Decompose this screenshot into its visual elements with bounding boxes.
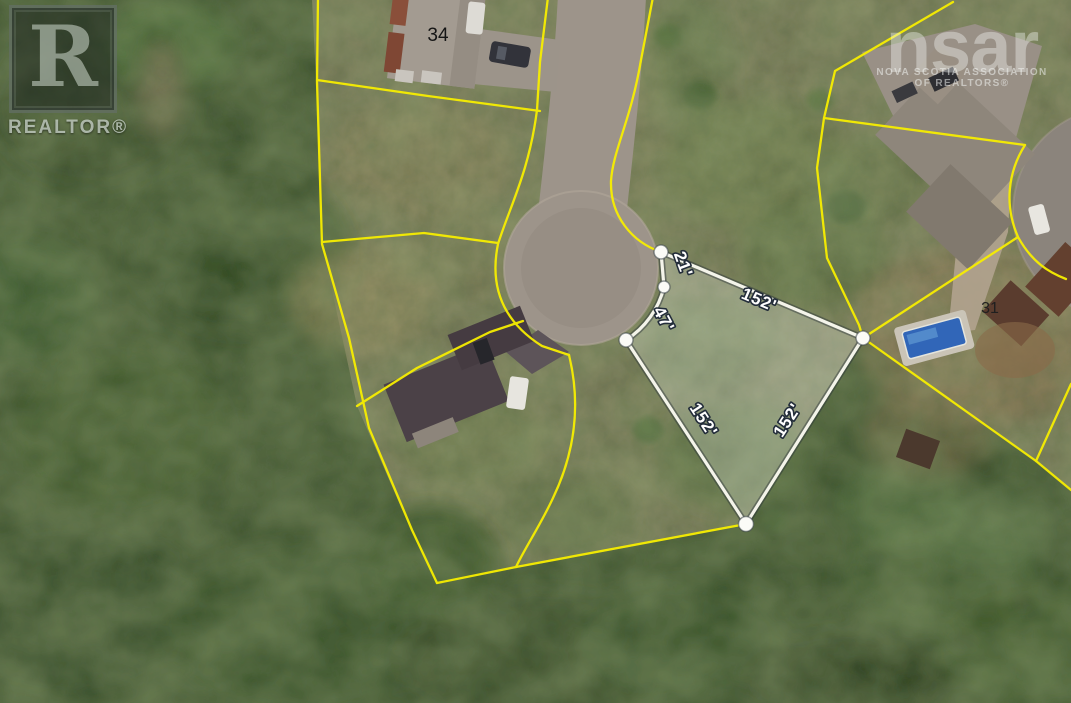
house-se-deck bbox=[975, 322, 1055, 378]
vertex-dot-west bbox=[619, 333, 633, 347]
house-lot34-porch2 bbox=[421, 70, 442, 84]
realtor-logo-label: REALTOR® bbox=[8, 117, 118, 139]
vertex-dot-arc-top bbox=[658, 281, 670, 293]
realtor-logo-box: R bbox=[9, 5, 117, 113]
aerial-map-canvas: 21' 47' 152' 152' 152' 34 31 bbox=[0, 0, 1071, 703]
house-lot34-porch bbox=[395, 69, 414, 83]
lot-number-31: 31 bbox=[981, 300, 999, 317]
vertex-dot-north bbox=[654, 245, 668, 259]
realtor-logo: R REALTOR® bbox=[8, 5, 118, 139]
cul-de-sac-center bbox=[521, 208, 641, 328]
lot-number-34: 34 bbox=[427, 25, 449, 46]
white-car-lot34 bbox=[465, 1, 485, 35]
vertex-dot-east bbox=[856, 331, 870, 345]
aerial-listing-photo: 21' 47' 152' 152' 152' 34 31 R REALTOR® … bbox=[0, 0, 1071, 703]
vertex-dot-south bbox=[739, 517, 754, 532]
realtor-r-icon: R bbox=[28, 15, 98, 99]
